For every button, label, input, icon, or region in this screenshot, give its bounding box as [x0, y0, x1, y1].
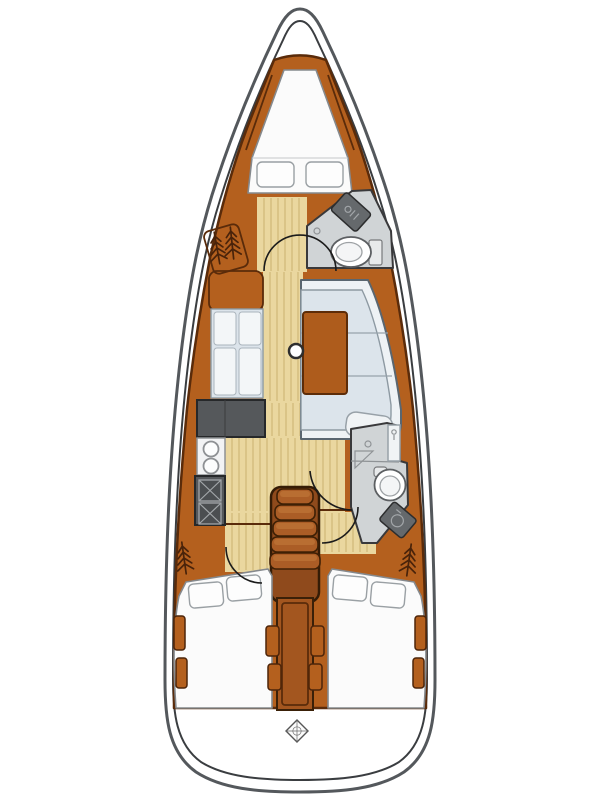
- salon-floor-mid: [265, 402, 303, 437]
- floorplan-svg: [0, 0, 600, 800]
- aft-pillow: [370, 582, 406, 609]
- salon-floor-upper: [263, 271, 303, 402]
- sink-icon: [204, 442, 219, 457]
- aft-pillow: [188, 582, 224, 609]
- galley-counter: [197, 400, 265, 437]
- aft-pillow: [332, 575, 368, 602]
- vberth-pillow-left: [257, 162, 294, 187]
- mast-post: [289, 344, 303, 358]
- boat-floorplan: [0, 0, 600, 800]
- vberth-pillow-right: [306, 162, 343, 187]
- salon-table: [303, 312, 347, 394]
- sink-icon: [204, 459, 219, 474]
